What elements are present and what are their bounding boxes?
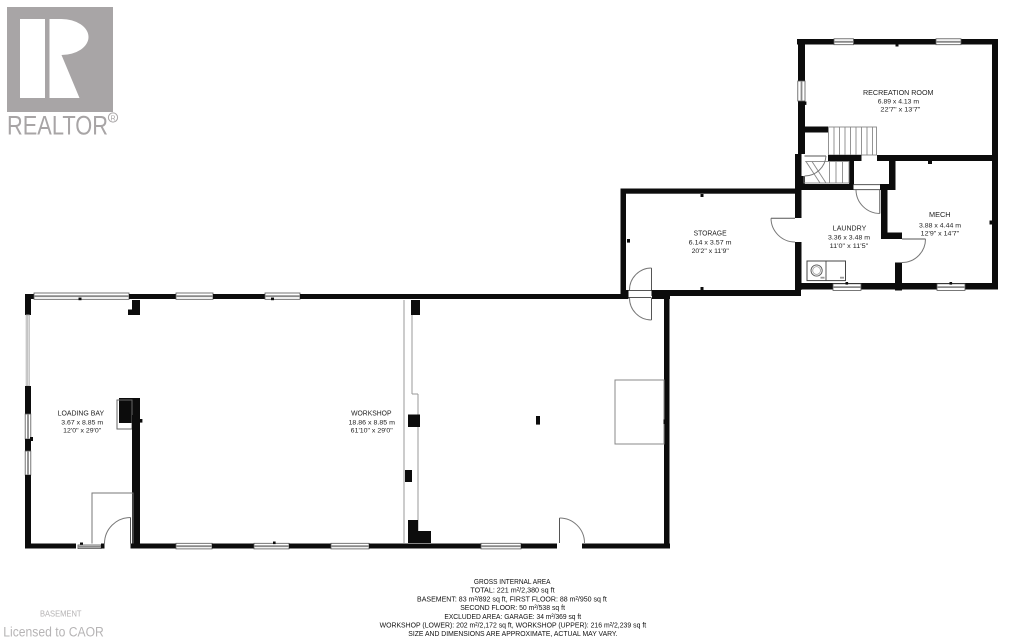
svg-text:RECREATION ROOM: RECREATION ROOM [863, 88, 934, 97]
svg-text:61'10" x 29'0": 61'10" x 29'0" [351, 428, 394, 435]
svg-text:MECH: MECH [929, 210, 951, 219]
svg-text:WORKSHOP (LOWER): 202 m²/2,172: WORKSHOP (LOWER): 202 m²/2,172 sq ft, WO… [380, 621, 647, 630]
svg-text:11'0" x 11'5": 11'0" x 11'5" [830, 243, 869, 250]
svg-text:3.36 x 3.48 m: 3.36 x 3.48 m [828, 235, 870, 242]
svg-text:SECOND FLOOR: 50 m²/538 sq ft: SECOND FLOOR: 50 m²/538 sq ft [460, 603, 566, 612]
svg-text:STORAGE: STORAGE [694, 228, 727, 237]
svg-text:18.86 x 8.85 m: 18.86 x 8.85 m [349, 419, 396, 426]
svg-text:3.88 x 4.44 m: 3.88 x 4.44 m [919, 222, 961, 229]
svg-text:TOTAL: 221 m²/2,380 sq ft: TOTAL: 221 m²/2,380 sq ft [470, 586, 555, 595]
svg-text:20'2" x 11'9": 20'2" x 11'9" [692, 248, 730, 255]
svg-text:6.89 x 4.13 m: 6.89 x 4.13 m [878, 98, 920, 105]
svg-text:Licensed to CAOR: Licensed to CAOR [3, 625, 104, 639]
svg-text:BASEMENT: BASEMENT [40, 610, 82, 619]
svg-text:3.67 x 8.85 m: 3.67 x 8.85 m [61, 419, 103, 426]
svg-text:BASEMENT: 83 m²/892 sq ft, FIR: BASEMENT: 83 m²/892 sq ft, FIRST FLOOR: … [417, 594, 608, 603]
svg-text:6.14 x 3.57 m: 6.14 x 3.57 m [689, 240, 732, 247]
svg-text:22'7" x 13'7": 22'7" x 13'7" [880, 106, 921, 113]
svg-text:EXCLUDED AREA: GARAGE: 34 m²/3: EXCLUDED AREA: GARAGE: 34 m²/369 sq ft [444, 612, 581, 621]
svg-text:12'9" x 14'7": 12'9" x 14'7" [921, 230, 960, 237]
svg-text:GROSS INTERNAL AREA: GROSS INTERNAL AREA [474, 577, 551, 586]
svg-text:LAUNDRY: LAUNDRY [833, 224, 867, 233]
svg-text:12'0" x 29'0": 12'0" x 29'0" [63, 428, 102, 435]
svg-text:R: R [110, 116, 115, 123]
svg-text:REALTOR: REALTOR [7, 111, 108, 141]
svg-text:SIZE AND DIMENSIONS ARE APPROX: SIZE AND DIMENSIONS ARE APPROXIMATE, ACT… [408, 629, 617, 638]
svg-text:LOADING BAY: LOADING BAY [58, 409, 105, 418]
svg-text:WORKSHOP: WORKSHOP [351, 409, 391, 418]
